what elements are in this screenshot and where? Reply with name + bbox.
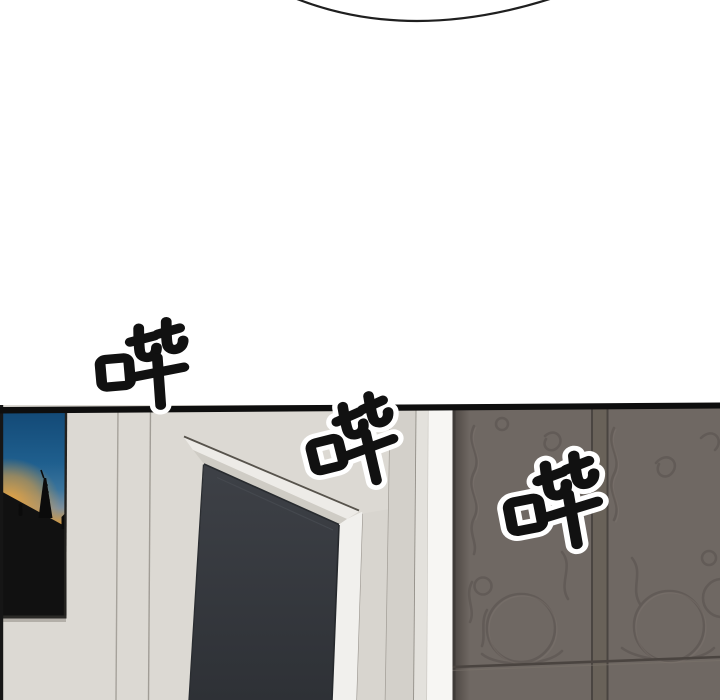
wall-corner-bands <box>386 405 454 700</box>
sfx-beep-1 <box>97 320 189 410</box>
lit-wall-strip <box>427 405 453 700</box>
photo-shadow <box>3 619 66 623</box>
wardrobe-left-edge <box>453 405 456 700</box>
photo-bottom-edge <box>3 616 67 619</box>
panel-art <box>0 0 720 700</box>
wardrobe-divider <box>592 405 608 700</box>
wardrobe <box>453 405 720 700</box>
speech-bubble-edge-line <box>292 0 556 21</box>
comic-panel: 哔 哔 哔 <box>0 0 720 700</box>
wardrobe-edge-shade <box>456 405 470 700</box>
wardrobe-body <box>453 405 720 700</box>
person-silhouette <box>19 504 23 517</box>
photo-right-edge <box>65 413 66 617</box>
room-corner-dark-strip <box>0 405 3 700</box>
corner-band-light <box>414 405 429 700</box>
